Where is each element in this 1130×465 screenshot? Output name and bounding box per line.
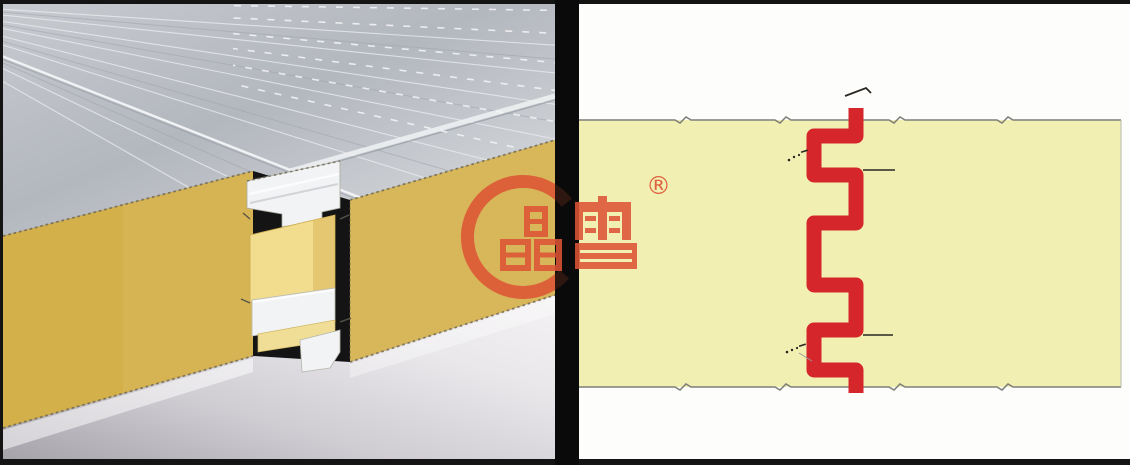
joint-detail <box>241 161 351 372</box>
joint-diagram-art <box>579 4 1130 459</box>
joint-foam-shadow <box>313 215 335 295</box>
panel-photo-art <box>3 4 555 459</box>
page: ® <box>0 0 1130 465</box>
core-band <box>579 120 1121 387</box>
panel-core-left-sheen <box>123 171 253 393</box>
panel-photo <box>3 4 555 459</box>
top-tick-mark <box>845 88 871 96</box>
joint-diagram <box>579 4 1130 459</box>
vertical-divider <box>555 0 579 465</box>
